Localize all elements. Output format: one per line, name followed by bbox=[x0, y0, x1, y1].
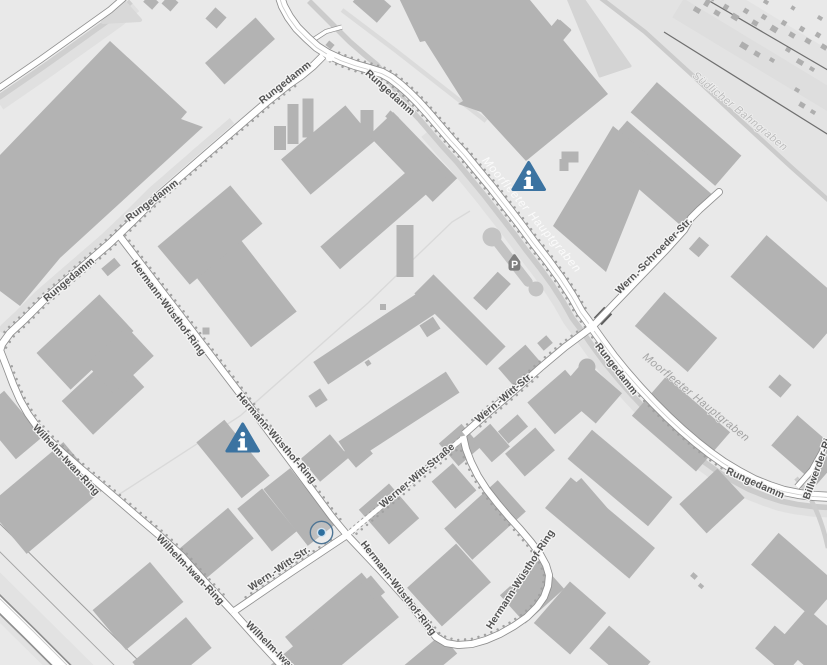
svg-text:P: P bbox=[511, 259, 518, 271]
